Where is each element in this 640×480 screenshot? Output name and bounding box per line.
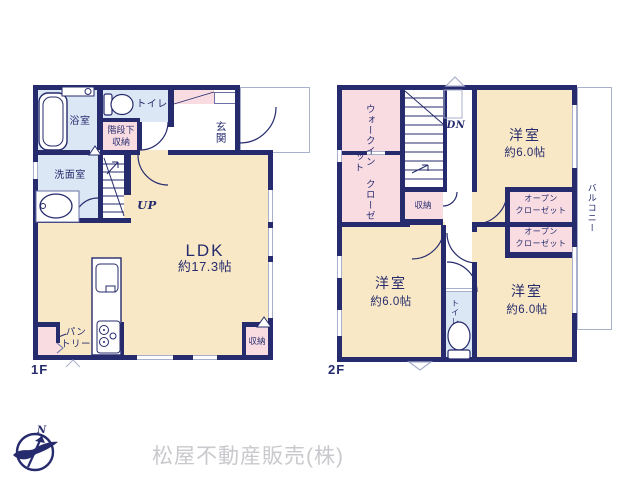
- label-toilet-1f: トイレ: [130, 99, 174, 111]
- label-storage-2f: 収納: [405, 200, 441, 210]
- window: [33, 162, 38, 179]
- wall-segment: [400, 187, 447, 192]
- wall-segment: [337, 357, 577, 362]
- wall-segment: [100, 150, 140, 155]
- wall-segment: [337, 222, 410, 227]
- wall-segment: [337, 162, 342, 256]
- window: [193, 355, 217, 360]
- wall-segment: [98, 218, 131, 223]
- compass-logo: N: [13, 425, 58, 470]
- label-stairs-down: DN: [444, 120, 468, 132]
- label-bedroom-tr-name: 洋室: [480, 127, 570, 144]
- north-label: N: [36, 425, 47, 436]
- wall-segment: [118, 322, 124, 355]
- room-washroom-1f: [33, 150, 103, 223]
- room-bedroom-bottom-left: [337, 222, 445, 362]
- wall-segment: [235, 85, 240, 155]
- window: [137, 355, 173, 360]
- label-balcony: バルコニー: [586, 176, 597, 240]
- label-floor1: 1F: [31, 362, 61, 378]
- label-walk-in-closet: ウォークイン クローゼット: [352, 103, 375, 221]
- label-entrance: 玄関: [214, 112, 227, 152]
- window: [337, 150, 342, 162]
- label-bedroom-bl-name: 洋室: [346, 275, 436, 292]
- door-arc-storage-2f: [443, 192, 457, 206]
- wall-segment: [98, 155, 103, 223]
- label-under-stair-storage: 階段下 収納: [98, 125, 144, 148]
- label-washroom: 洗面室: [40, 170, 100, 182]
- wall-segment: [572, 313, 577, 362]
- wall-segment: [124, 155, 131, 195]
- label-stairs-up: UP: [134, 199, 160, 213]
- window: [337, 310, 342, 336]
- label-open-closet-1: オープン クローゼット: [504, 193, 578, 216]
- label-open-closet-2: オープン クローゼット: [504, 226, 578, 249]
- bird-icon: [13, 442, 58, 460]
- wall-segment: [572, 85, 577, 105]
- wall-segment: [505, 252, 577, 258]
- wall-segment: [337, 278, 342, 310]
- company-name: 松屋不動産販売(株): [152, 440, 344, 470]
- label-bedroom-bl-size: 約6.0帖: [346, 296, 436, 310]
- shoe-counter: [214, 92, 236, 104]
- window: [572, 247, 577, 313]
- window: [268, 262, 273, 318]
- label-bedroom-br-size: 約6.0帖: [482, 304, 572, 318]
- stairs-down-2f: [405, 90, 462, 179]
- window: [268, 190, 273, 222]
- entrance-porch: [240, 87, 310, 153]
- wall-segment: [472, 262, 477, 357]
- wall-segment: [509, 187, 577, 192]
- wall-segment: [337, 85, 342, 150]
- window: [268, 228, 273, 256]
- label-storage-1f: 収納: [242, 336, 272, 346]
- label-toilet-2f: トイレ: [450, 294, 460, 330]
- wall-segment: [472, 85, 477, 192]
- wall-segment: [168, 118, 174, 122]
- label-pantry: パン トリー: [56, 327, 96, 350]
- wall-segment: [33, 85, 240, 90]
- wall-segment: [100, 118, 140, 122]
- label-bedroom-br-name: 洋室: [482, 283, 572, 300]
- wall-segment: [337, 85, 577, 90]
- door-arc-toilet-1f: [140, 122, 168, 150]
- label-bathroom: 浴室: [58, 116, 102, 128]
- wall-segment: [268, 150, 273, 190]
- shoe-cabinet: [174, 90, 214, 104]
- wall-segment: [33, 218, 103, 223]
- label-floor2: 2F: [328, 362, 358, 378]
- window: [572, 105, 577, 168]
- stairs-up-1f: [103, 158, 124, 216]
- floorplan-canvas: N 浴室 トイレ 階段下 収納 玄関 洗面室 UP LDK 約17.3帖 パン …: [0, 0, 640, 480]
- label-ldk-size: 約17.3帖: [155, 259, 255, 275]
- window: [337, 256, 342, 278]
- wall-segment: [443, 85, 447, 190]
- toilet-threshold: [446, 288, 472, 292]
- wall-segment: [385, 151, 405, 155]
- label-bedroom-tr-size: 約6.0帖: [480, 147, 570, 161]
- wall-segment: [33, 150, 90, 155]
